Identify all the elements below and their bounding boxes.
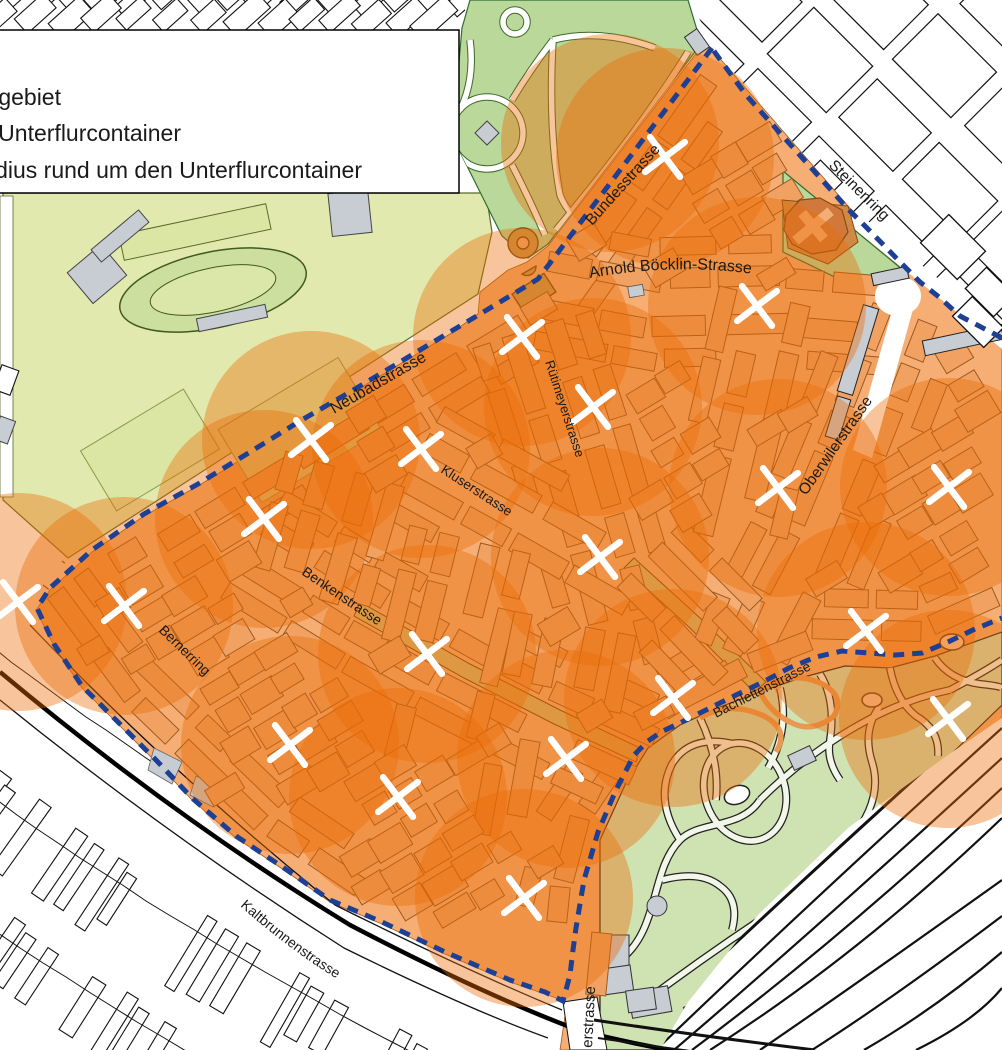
svg-text:Perimeter Pilotgebiet: Perimeter Pilotgebiet <box>0 84 62 110</box>
svg-text:erstrasse: erstrasse <box>579 986 599 1048</box>
svg-text:Standort Unterflurcontainer: Standort Unterflurcontainer <box>0 120 181 146</box>
svg-text:150 m Radius rund um den Unter: 150 m Radius rund um den Unterflurcontai… <box>0 157 362 183</box>
